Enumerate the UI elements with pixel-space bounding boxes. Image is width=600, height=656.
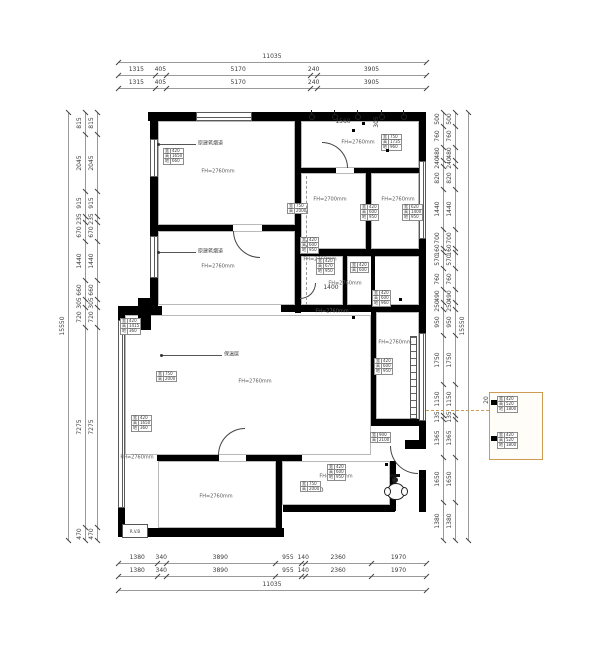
dim-label: 15550 (460, 316, 466, 335)
room-height-label: FH=2760mm (238, 380, 271, 385)
dimension-line (443, 112, 444, 540)
dim-label: 3905 (364, 67, 379, 73)
figure-arm-right (401, 487, 408, 496)
room-height-label: FH=2760mm (378, 341, 411, 346)
dim-label: 7275 (77, 419, 83, 434)
dim-label: 1970 (391, 555, 406, 561)
dimension-line (468, 112, 469, 540)
dim-label: 340 (156, 555, 167, 561)
ceiling-light-stem (334, 110, 335, 114)
room-height-label: FH=2760mm (201, 265, 234, 270)
spec-table: 宽420高600地960 (372, 290, 391, 307)
wall-segment (281, 305, 426, 312)
spec-cell: 600 (358, 268, 369, 273)
dim-label: 1150 (435, 392, 441, 407)
free-dim-label: 1400 (323, 285, 338, 291)
dim-label: 405 (155, 67, 166, 73)
spec-cell: 地 (375, 369, 382, 374)
dim-label: 240 (435, 157, 441, 168)
dim-label: 235 (89, 213, 95, 224)
dim-label: 470 (77, 528, 83, 539)
dim-label: 250 (435, 300, 441, 311)
dim-label: 760 (435, 273, 441, 284)
dim-label: 240 (308, 67, 319, 73)
spec-cell: 地 (121, 329, 128, 334)
dashed-line (306, 257, 307, 305)
dim-label: 11035 (262, 582, 281, 588)
spec-cell: 950 (368, 215, 379, 220)
leader-dot (157, 143, 160, 146)
fixture-dot (352, 129, 355, 132)
wall-segment (127, 306, 152, 315)
dimension-line (118, 590, 426, 591)
dim-label: 3890 (213, 555, 228, 561)
wall-segment (276, 461, 282, 535)
spec-table: 宽420高1415地360 (120, 318, 141, 335)
dim-label: 2360 (330, 555, 345, 561)
spec-cell: 950 (324, 269, 335, 274)
dim-label: 500 (435, 113, 441, 124)
dimension-line (68, 112, 69, 540)
spec-table: 宽420高670地950 (316, 258, 335, 275)
dim-tick (424, 86, 430, 92)
dim-label: 240 (447, 157, 453, 168)
dim-label: 1150 (447, 392, 453, 407)
room-height-label: FH=2760mm (341, 141, 374, 146)
leader-dot (157, 251, 160, 254)
window-midline (423, 162, 424, 238)
spec-cell: 1800 (505, 443, 518, 448)
leader-text: 原建筑烟道 (198, 250, 223, 255)
ceiling-light-stem (403, 110, 404, 114)
spec-cell: 地 (317, 269, 324, 274)
spec-cell: 地 (403, 215, 410, 220)
spec-cell: 地 (132, 426, 139, 431)
appliance-label: R.V.B (130, 529, 140, 534)
callout-spec-table: 宽420高520地1800 (497, 432, 518, 449)
dim-label: 240 (308, 80, 319, 86)
ceiling-light-icon (309, 114, 315, 120)
dim-label: 660 (77, 284, 83, 295)
appliance-box: R.V.B (122, 524, 148, 538)
spec-cell: 地 (164, 159, 171, 164)
spec-table: 宽420高600 (350, 262, 369, 273)
leader-line (158, 252, 196, 253)
entry-figure-icon (384, 474, 406, 502)
spec-cell: 360 (128, 329, 141, 334)
dim-label: 1440 (447, 201, 453, 216)
dim-label: 1315 (129, 67, 144, 73)
dim-label: 570 (435, 254, 441, 265)
window-midline (154, 140, 155, 176)
dim-label: 660 (89, 284, 95, 295)
dim-label: 1380 (130, 555, 145, 561)
dim-label: 820 (435, 172, 441, 183)
spec-cell: 950 (382, 369, 393, 374)
dim-tick (424, 574, 430, 580)
dim-label: 760 (447, 130, 453, 141)
ceiling-light-stem (381, 110, 382, 114)
dim-label: 700 (435, 233, 441, 244)
spec-cell: 360 (139, 426, 152, 431)
leader-line (161, 355, 222, 356)
dimension-line (118, 62, 426, 63)
room-height-label: FH=2760mm (381, 198, 414, 203)
spec-cell: 地 (328, 475, 335, 480)
dim-label: 7275 (89, 419, 95, 434)
dim-label: 340 (156, 568, 167, 574)
fixture-dot (399, 298, 402, 301)
wall-segment (150, 112, 158, 139)
dim-label: 135 (447, 411, 453, 422)
room-height-label: FH=2700mm (313, 198, 346, 203)
dim-label: 1440 (435, 201, 441, 216)
dim-tick (424, 588, 430, 594)
dashed-line (306, 176, 307, 248)
spec-table: 宽750高2000 (300, 481, 321, 492)
free-dim-label: 1560 (335, 119, 350, 125)
ceiling-light-stem (311, 110, 312, 114)
ceiling-light-icon (401, 114, 407, 120)
leader-line (158, 144, 196, 145)
fixture-dot (385, 463, 388, 466)
dim-label: 1380 (130, 568, 145, 574)
dim-label: 15550 (60, 316, 66, 335)
callout-spec-table: 宽420高520地1800 (497, 396, 518, 413)
window-symbol (196, 112, 252, 121)
spec-table: 宽420高600地950 (300, 237, 319, 254)
dim-label: 1315 (129, 80, 144, 86)
dim-label: 305 (89, 297, 95, 308)
dim-label: 670 (89, 226, 95, 237)
spec-cell: 地 (301, 248, 308, 253)
dim-label: 250 (447, 300, 453, 311)
spec-cell: 960 (380, 301, 391, 306)
dim-label: 11035 (262, 54, 281, 60)
dim-label: 140 (297, 555, 308, 561)
spec-cell: 高 (288, 209, 295, 214)
dim-label: 815 (77, 117, 83, 128)
dim-label: 5170 (231, 80, 246, 86)
dim-label: 950 (447, 317, 453, 328)
leader-text: 原建筑烟道 (198, 142, 223, 147)
dim-label: 1365 (435, 430, 441, 445)
wall-segment (371, 419, 426, 426)
spec-table: 宽420高1650地660 (163, 148, 184, 165)
dim-label: 500 (447, 113, 453, 124)
dim-label: 760 (447, 273, 453, 284)
spec-cell: 2000 (308, 487, 321, 492)
spec-table: 宽750高2000 (287, 203, 308, 214)
fixture-dot (362, 122, 365, 125)
dim-label: 235 (77, 213, 83, 224)
dim-label: 3890 (213, 568, 228, 574)
fixture-dot (386, 149, 389, 152)
dim-label: 1650 (447, 472, 453, 487)
ceiling-light-icon (379, 114, 385, 120)
room-height-label: FH=2760mm (199, 495, 232, 500)
dim-label: 2045 (89, 155, 95, 170)
dim-label: 1440 (77, 253, 83, 268)
leader-text: 保温层 (224, 353, 239, 358)
spec-table: 宽620高1400地950 (402, 204, 423, 221)
spec-table: 宽420高600地950 (360, 204, 379, 221)
dim-label: 720 (89, 311, 95, 322)
dim-label: 5170 (231, 67, 246, 73)
window-midline (197, 117, 251, 118)
window-symbol (419, 161, 426, 239)
louver-hatch (410, 336, 417, 419)
spec-table: 宽750高1735地960 (381, 134, 402, 151)
room-height-label: FH=2760mm (120, 456, 153, 461)
dim-label: 1380 (435, 513, 441, 528)
dim-label: 1750 (447, 352, 453, 367)
leader-dot (160, 354, 163, 357)
spec-cell: 1800 (505, 407, 518, 412)
wall-segment (157, 225, 233, 231)
window-midline (122, 321, 123, 507)
dim-label: 3905 (364, 80, 379, 86)
spec-cell: 高 (301, 487, 308, 492)
dim-label: 820 (447, 172, 453, 183)
spec-cell: 高 (351, 268, 358, 273)
dim-label: 1380 (447, 513, 453, 528)
spec-cell: 地 (361, 215, 368, 220)
dim-label: 1970 (391, 568, 406, 574)
window-symbol (419, 333, 426, 421)
dim-label: 915 (89, 198, 95, 209)
wall-segment (246, 455, 302, 461)
spec-cell: 950 (308, 248, 319, 253)
spec-cell: 2100 (378, 438, 391, 443)
dim-label: 915 (77, 198, 83, 209)
spec-table: 宽420高1650地360 (131, 415, 152, 432)
window-midline (154, 237, 155, 277)
dim-label: 720 (77, 311, 83, 322)
dim-tick (424, 73, 430, 79)
spec-cell: 地 (498, 443, 505, 448)
wall-segment (283, 505, 395, 512)
dim-label: 700 (447, 233, 453, 244)
dim-label: 1750 (435, 352, 441, 367)
dim-label: 955 (282, 568, 293, 574)
spec-cell: 地 (373, 301, 380, 306)
dim-label: 570 (447, 254, 453, 265)
spec-table: 宽750高2000 (156, 371, 177, 382)
wall-segment (354, 168, 425, 173)
dim-label: 470 (89, 528, 95, 539)
dim-label: 405 (155, 80, 166, 86)
dim-label: 135 (435, 411, 441, 422)
dashed-line (426, 410, 489, 411)
wall-segment (300, 249, 426, 256)
spec-cell: 660 (171, 159, 184, 164)
spec-cell: 960 (389, 145, 402, 150)
ceiling-light-stem (357, 110, 358, 114)
spec-cell: 高 (371, 438, 378, 443)
room-outline (125, 315, 371, 455)
dim-label: 1365 (447, 430, 453, 445)
spec-table: 宽420高600地950 (374, 358, 393, 375)
dim-label: 305 (77, 297, 83, 308)
spec-cell: 950 (410, 215, 423, 220)
wall-segment (419, 470, 426, 512)
dim-label: 670 (77, 226, 83, 237)
ceiling-light-icon (355, 114, 361, 120)
spec-table: 宽900高2100 (370, 432, 391, 443)
spec-cell: 2000 (164, 377, 177, 382)
dim-label: 1650 (435, 472, 441, 487)
spec-table: 宽420高600地950 (327, 464, 346, 481)
dim-tick (424, 561, 430, 567)
ceiling-light-icon (332, 114, 338, 120)
dim-label: 1440 (89, 253, 95, 268)
dim-label: 2045 (77, 155, 83, 170)
spec-cell: 地 (498, 407, 505, 412)
dim-label: 955 (282, 555, 293, 561)
room-height-label: FH=2760mm (201, 170, 234, 175)
room-height-label: FH=2760mm (315, 310, 348, 315)
spec-cell: 950 (335, 475, 346, 480)
window-symbol (118, 320, 125, 508)
dimension-line (455, 112, 456, 540)
dim-label: 140 (297, 568, 308, 574)
floorplan-canvas: 1103513154055170240390513154055170240390… (0, 0, 600, 656)
wall-segment (419, 112, 426, 161)
dim-label: 2360 (330, 568, 345, 574)
dim-tick (424, 60, 430, 66)
window-symbol (150, 236, 158, 278)
floorplan-page: { "drawing": { "fridge_label": "R.V.B", … (0, 0, 600, 656)
window-midline (423, 334, 424, 420)
dim-label: 815 (89, 117, 95, 128)
figure-arm-left (384, 487, 391, 496)
wall-segment (157, 455, 219, 461)
dim-label: 950 (435, 317, 441, 328)
fixture-dot (352, 316, 355, 319)
dim-label: 760 (435, 130, 441, 141)
spec-cell: 高 (157, 377, 164, 382)
wall-segment (300, 168, 336, 173)
